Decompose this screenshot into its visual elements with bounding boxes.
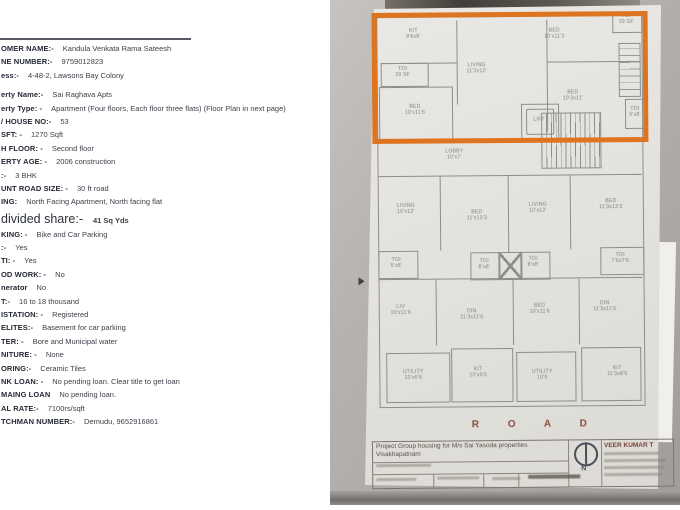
property-detail-row: :- 3 BHK <box>1 171 327 184</box>
room-label: BED10'x11'6 <box>512 302 568 314</box>
photo-artifact <box>358 277 364 285</box>
document-top-rule <box>0 38 191 40</box>
property-detail-rows-bottom: KING: - Bike and Car Parking :- Yes TI: … <box>1 230 327 431</box>
road-label: R O A D <box>472 418 600 430</box>
detail-label: ess:- <box>1 71 19 80</box>
room-label: DIN11'3x11'6 <box>577 300 633 312</box>
property-detail-row: UNT ROAD SIZE: - 30 ft road <box>1 184 327 197</box>
property-detail-row: TCHMAN NUMBER:- Demudu, 9652916861 <box>1 417 327 430</box>
detail-label: SFT: - <box>1 130 22 139</box>
title-block-divider <box>601 440 602 486</box>
detail-label: NK LOAN: - <box>1 377 43 386</box>
detail-value: Basement for car parking <box>42 323 126 332</box>
illegible-text-bar <box>376 464 431 467</box>
detail-label: nerator <box>1 283 28 292</box>
room-label: TOI5'x8' <box>368 257 424 269</box>
compass-needle <box>585 442 587 464</box>
detail-label: TCHMAN NUMBER:- <box>1 417 75 426</box>
title-block-divider <box>433 474 434 488</box>
detail-label: NE NUMBER:- <box>1 57 53 66</box>
title-block-rule <box>373 461 568 464</box>
property-detail-row: MAING LOAN No pending loan. <box>1 390 327 403</box>
property-detail-row: AL RATE:- 7100rs/sqft <box>1 404 327 417</box>
handwritten-note-bar <box>528 474 580 478</box>
room-label: LIVING10'x12' <box>510 202 566 214</box>
detail-label: erty Name:- <box>1 90 43 99</box>
detail-value: 3 BHK <box>15 171 37 180</box>
room-label: TOI8'x8' <box>456 258 512 270</box>
detail-value: 7100rs/sqft <box>48 404 85 413</box>
north-letter: N <box>581 465 586 472</box>
illegible-text-bar <box>604 452 659 455</box>
detail-value: North Facing Apartment, North facing fla… <box>26 197 162 206</box>
detail-value: 30 ft road <box>77 184 109 193</box>
detail-value: None <box>46 350 64 359</box>
undivided-share-row: divided share:- 41 Sq Yds <box>1 212 327 229</box>
property-detail-row: OMER NAME:- Kandula Venkata Rama Sateesh <box>1 44 327 57</box>
room-label: LOBBY10'x7' <box>426 148 482 160</box>
north-compass-icon <box>574 442 598 466</box>
detail-label: ISTATION: - <box>1 310 43 319</box>
property-detail-row: ORING:- Ceramic Tiles <box>1 364 327 377</box>
detail-label: OD WORK: - <box>1 270 46 279</box>
detail-value: Kandula Venkata Rama Sateesh <box>63 44 171 53</box>
detail-label: TI: - <box>1 256 15 265</box>
detail-value: Bore and Municipal water <box>33 337 118 346</box>
property-detail-row: ISTATION: - Registered <box>1 310 327 323</box>
detail-value: 16 to 18 thousand <box>19 297 79 306</box>
room-label: KIT11'3x9'6 <box>589 365 645 377</box>
illegible-text-bar <box>376 478 416 481</box>
property-detail-rows-top: OMER NAME:- Kandula Venkata Rama Sateesh… <box>1 44 327 211</box>
room-label: UTILITY10'x6'6 <box>385 369 441 381</box>
property-detail-row: H FLOOR: - Second floor <box>1 144 327 157</box>
detail-value: 9759012823 <box>62 57 104 66</box>
detail-value: Apartment (Four floors, Each floor three… <box>51 104 286 113</box>
room-label: LIV10'x11'6 <box>373 304 429 316</box>
illegible-text-bar <box>604 466 664 470</box>
room-label: TOI8'x8' <box>505 256 561 268</box>
property-detail-row: NK LOAN: - No pending loan. Clear title … <box>1 377 327 390</box>
detail-value: Yes <box>24 256 36 265</box>
detail-label: ELITES:- <box>1 323 33 332</box>
detail-value: Sai Raghava Apts <box>52 90 112 99</box>
detail-value: 1270 Sqft <box>31 130 63 139</box>
detail-value: 2006 construction <box>56 157 115 166</box>
room-label: TOI7'6x7'6 <box>592 252 648 264</box>
detail-label: ING: <box>1 197 17 206</box>
detail-value: No pending loan. <box>59 390 116 399</box>
detail-value: Registered <box>52 310 88 319</box>
room-label: KIT10'x9'6 <box>450 366 506 378</box>
title-block-divider <box>568 440 569 486</box>
detail-label: NITURE: - <box>1 350 37 359</box>
illegible-text-bar <box>604 473 662 477</box>
illegible-text-bar <box>437 476 479 479</box>
illegible-text-bar <box>492 477 520 480</box>
property-detail-row: ERTY AGE: - 2006 construction <box>1 157 327 170</box>
detail-label: ERTY AGE: - <box>1 157 47 166</box>
detail-value: No <box>55 270 65 279</box>
architect-name: VEER KUMAR T <box>604 442 654 449</box>
detail-label: MAING LOAN <box>1 390 50 399</box>
property-detail-row: OD WORK: - No <box>1 270 327 283</box>
detail-label: :- <box>1 171 6 180</box>
property-detail-row: TI: - Yes <box>1 256 327 269</box>
room-label: UTILITY10'6 <box>514 368 570 380</box>
detail-value: Ceramic Tiles <box>40 364 85 373</box>
detail-value: No pending loan. Clear title to get loan <box>52 377 180 386</box>
property-detail-row: T:- 16 to 18 thousand <box>1 297 327 310</box>
property-detail-row: NE NUMBER:- 9759012823 <box>1 57 327 70</box>
photo-bottom-shadow <box>330 491 680 505</box>
property-detail-row: / HOUSE NO:- 53 <box>1 117 327 130</box>
detail-label: T:- <box>1 297 10 306</box>
property-detail-row: erty Type: - Apartment (Four floors, Eac… <box>1 104 327 117</box>
detail-label: ORING:- <box>1 364 31 373</box>
project-city: Visakhapatnam <box>376 451 421 458</box>
detail-label: :- <box>1 243 6 252</box>
title-block-divider <box>483 473 484 487</box>
detail-label: KING: - <box>1 230 28 239</box>
detail-label: OMER NAME:- <box>1 44 54 53</box>
detail-label: AL RATE:- <box>1 404 39 413</box>
floorplan-photo: KIT9'6x8' TOI29 SF LIVING11'3x12' BED10'… <box>330 0 680 505</box>
property-detail-row: ess:- 4-48-2, Lawsons Bay Colony <box>1 71 327 84</box>
room-label: DIN11'3x11'6 <box>444 308 500 320</box>
detail-value: Bike and Car Parking <box>37 230 108 239</box>
property-detail-row: ING: North Facing Apartment, North facin… <box>1 197 327 210</box>
detail-value: 53 <box>60 117 68 126</box>
detail-label: erty Type: - <box>1 104 42 113</box>
detail-value: Yes <box>15 243 27 252</box>
room-label: BED11'x13'3 <box>449 209 505 221</box>
page: { "document": { "rows_top": [ {"label":"… <box>0 0 680 510</box>
property-detail-row: TER: - Bore and Municipal water <box>1 337 327 350</box>
share-label: divided share:- <box>1 212 83 226</box>
highlight-rectangle <box>372 11 649 144</box>
detail-label: H FLOOR: - <box>1 144 43 153</box>
property-detail-row: SFT: - 1270 Sqft <box>1 130 327 143</box>
property-detail-row: ELITES:- Basement for car parking <box>1 323 327 336</box>
property-detail-row: :- Yes <box>1 243 327 256</box>
property-detail-row: nerator No <box>1 283 327 296</box>
property-detail-row: erty Name:- Sai Raghava Apts <box>1 90 327 103</box>
property-detail-row: KING: - Bike and Car Parking <box>1 230 327 243</box>
share-value: 41 Sq Yds <box>93 216 129 225</box>
detail-value: 4-48-2, Lawsons Bay Colony <box>28 71 124 80</box>
detail-value: No <box>37 283 47 292</box>
room-label: BED11'3x13'3 <box>583 198 639 210</box>
property-detail-row: NITURE: - None <box>1 350 327 363</box>
detail-label: TER: - <box>1 337 24 346</box>
project-title: Project Group housing for M/s Sai Yasoda… <box>376 442 528 450</box>
room-label: LIVING10'x12' <box>378 203 434 215</box>
detail-label: UNT ROAD SIZE: - <box>1 184 68 193</box>
detail-label: / HOUSE NO:- <box>1 117 51 126</box>
illegible-text-bar <box>604 459 666 463</box>
detail-value: Second floor <box>52 144 94 153</box>
property-details-document: OMER NAME:- Kandula Venkata Rama Sateesh… <box>1 44 327 431</box>
detail-value: Demudu, 9652916861 <box>84 417 158 426</box>
